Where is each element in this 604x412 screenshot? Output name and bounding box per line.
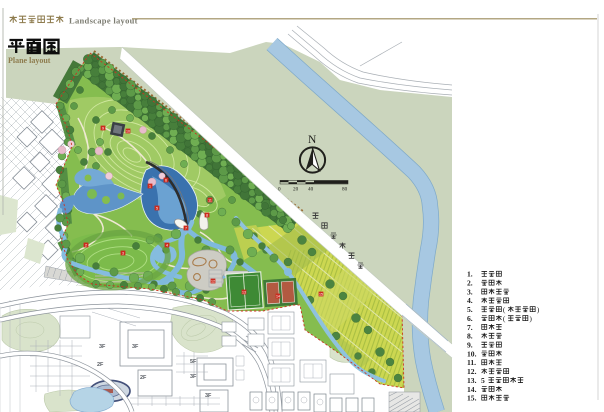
svg-text:7.: 7. — [467, 323, 473, 332]
svg-text:9: 9 — [102, 126, 104, 130]
svg-text:8: 8 — [206, 213, 208, 217]
svg-text:3: 3 — [122, 251, 124, 255]
svg-text:12.: 12. — [467, 367, 477, 376]
svg-text:4: 4 — [166, 243, 168, 247]
svg-text:2F: 2F — [97, 362, 104, 368]
svg-text:7: 7 — [185, 226, 187, 230]
svg-text:(: ( — [503, 305, 506, 314]
svg-text:3F: 3F — [132, 344, 139, 350]
svg-text:14.: 14. — [467, 385, 477, 394]
svg-text:): ) — [537, 305, 540, 314]
svg-text:13: 13 — [242, 290, 246, 294]
svg-text:5: 5 — [481, 376, 487, 385]
svg-text:12: 12 — [211, 279, 215, 283]
svg-text:10: 10 — [126, 129, 130, 133]
svg-text:6: 6 — [165, 178, 167, 182]
svg-text:N: N — [308, 134, 317, 146]
svg-text:1: 1 — [149, 184, 151, 188]
svg-text:): ) — [529, 314, 532, 323]
svg-text:2.: 2. — [467, 279, 473, 288]
svg-text:3F: 3F — [99, 344, 106, 350]
svg-text:3F: 3F — [190, 374, 197, 380]
svg-text:13.: 13. — [467, 376, 477, 385]
svg-text:15.: 15. — [467, 394, 477, 403]
svg-text:11.: 11. — [467, 358, 476, 367]
svg-text:1.: 1. — [467, 270, 473, 279]
svg-text:8.: 8. — [467, 332, 473, 341]
svg-text:11: 11 — [208, 198, 212, 202]
svg-text:Landscape layout: Landscape layout — [69, 16, 138, 26]
svg-text:3F: 3F — [205, 393, 212, 399]
svg-text:9.: 9. — [467, 341, 473, 350]
svg-text:(: ( — [503, 314, 506, 323]
svg-text:5F: 5F — [190, 359, 197, 365]
svg-text:3.: 3. — [467, 287, 473, 296]
svg-text:2: 2 — [85, 243, 87, 247]
svg-text:5: 5 — [156, 206, 158, 210]
svg-text:20: 20 — [293, 187, 299, 193]
svg-text:2F: 2F — [140, 375, 147, 381]
svg-text:Plane layout: Plane layout — [8, 56, 51, 65]
svg-text:4.: 4. — [467, 296, 473, 305]
svg-text:5.: 5. — [467, 305, 473, 314]
svg-text:40: 40 — [308, 187, 314, 193]
svg-text:14: 14 — [276, 294, 280, 298]
svg-text:80: 80 — [342, 187, 348, 193]
svg-text:6.: 6. — [467, 314, 473, 323]
svg-text:10.: 10. — [467, 349, 477, 358]
svg-text:15: 15 — [319, 292, 323, 296]
svg-text:0: 0 — [278, 187, 281, 193]
